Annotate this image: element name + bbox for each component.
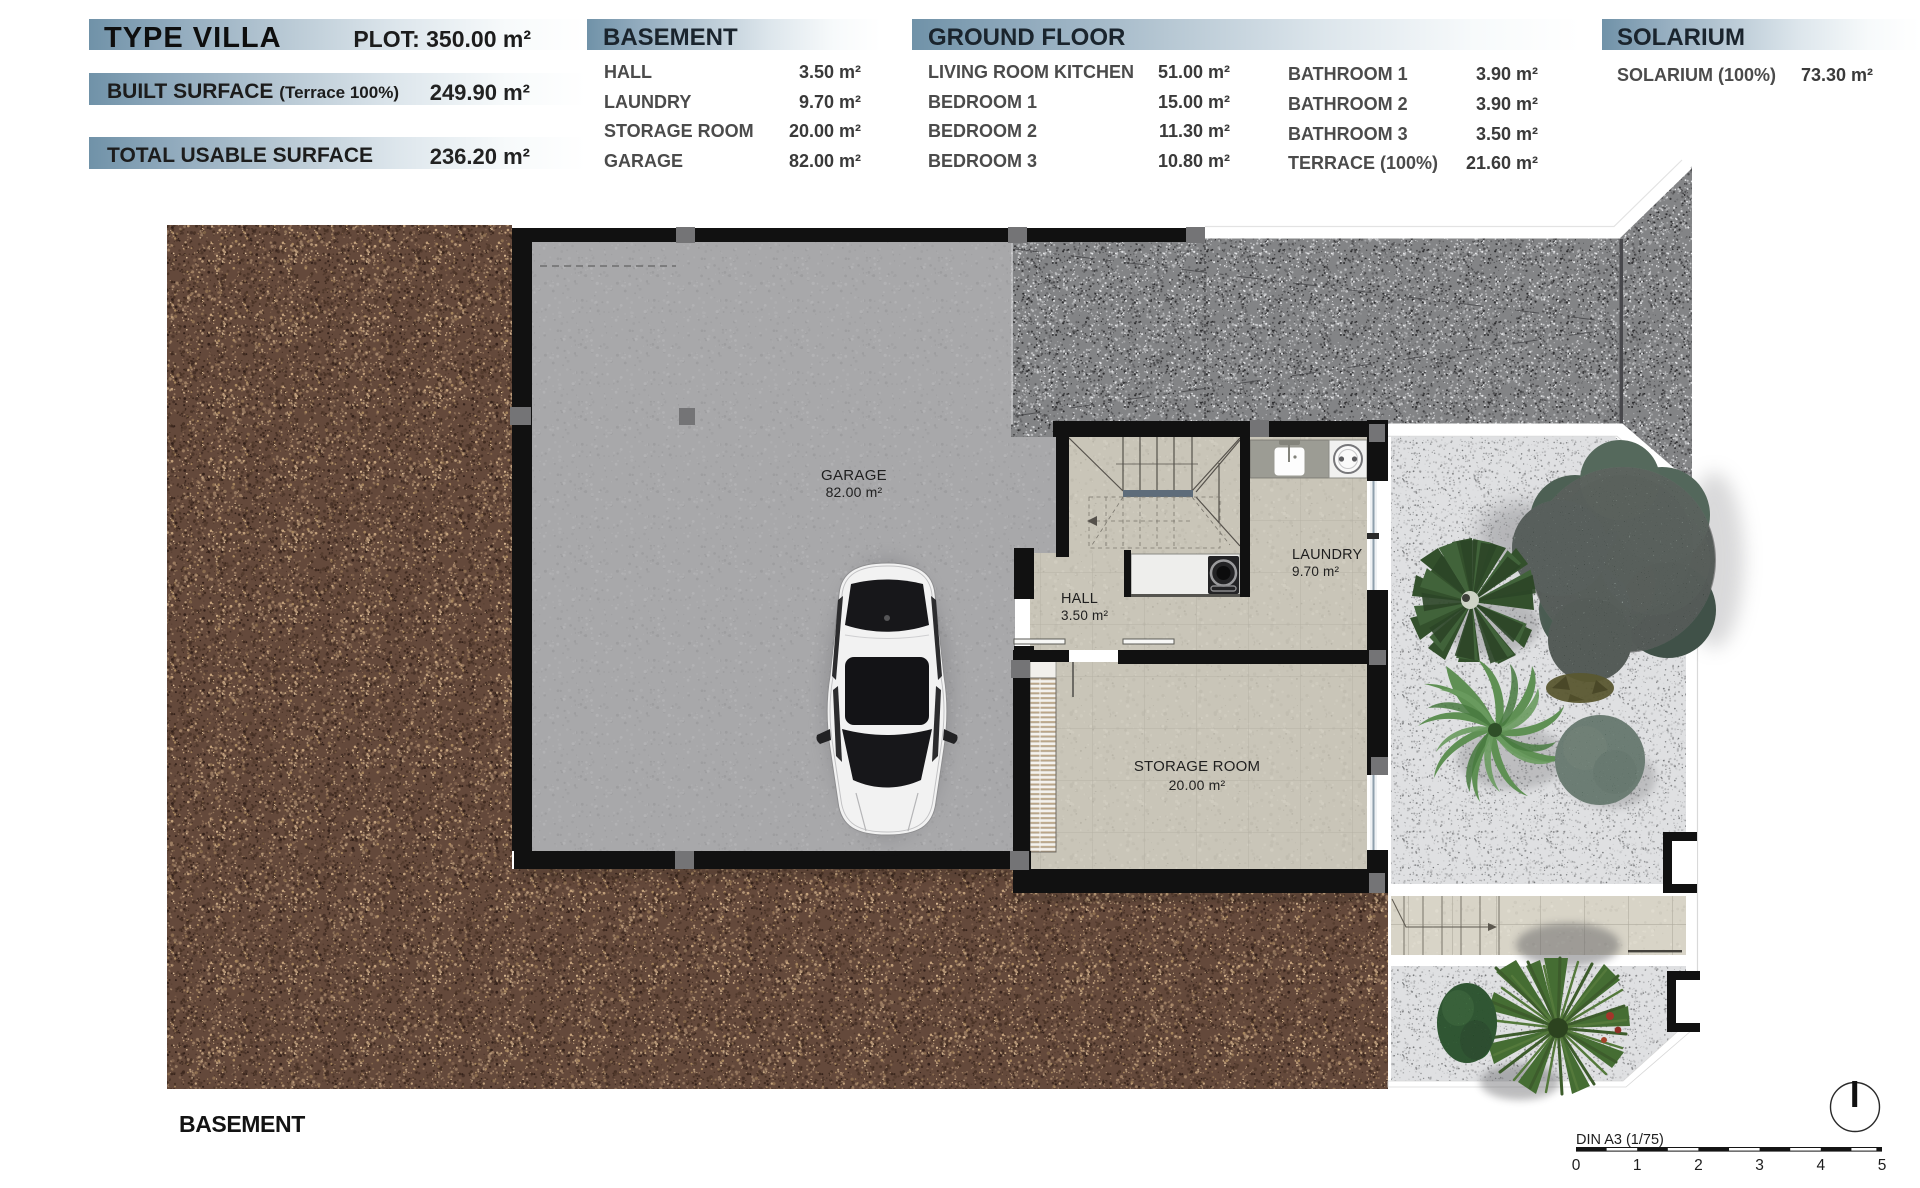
svg-text:2: 2 bbox=[1694, 1157, 1703, 1174]
svg-text:82.00 m²: 82.00 m² bbox=[826, 484, 883, 500]
svg-text:9.70 m²: 9.70 m² bbox=[1292, 564, 1339, 579]
svg-text:0: 0 bbox=[1572, 1157, 1581, 1174]
svg-text:HALL: HALL bbox=[1061, 591, 1098, 607]
svg-text:STORAGE ROOM: STORAGE ROOM bbox=[1134, 758, 1260, 775]
svg-text:5: 5 bbox=[1878, 1157, 1887, 1174]
svg-text:3: 3 bbox=[1755, 1157, 1764, 1174]
svg-text:DIN A3 (1/75): DIN A3 (1/75) bbox=[1576, 1132, 1664, 1148]
svg-text:1: 1 bbox=[1633, 1157, 1642, 1174]
svg-text:4: 4 bbox=[1816, 1157, 1825, 1174]
svg-text:LAUNDRY: LAUNDRY bbox=[1292, 547, 1363, 563]
svg-text:GARAGE: GARAGE bbox=[821, 467, 887, 484]
svg-text:20.00 m²: 20.00 m² bbox=[1169, 777, 1226, 793]
svg-text:3.50 m²: 3.50 m² bbox=[1061, 608, 1108, 623]
